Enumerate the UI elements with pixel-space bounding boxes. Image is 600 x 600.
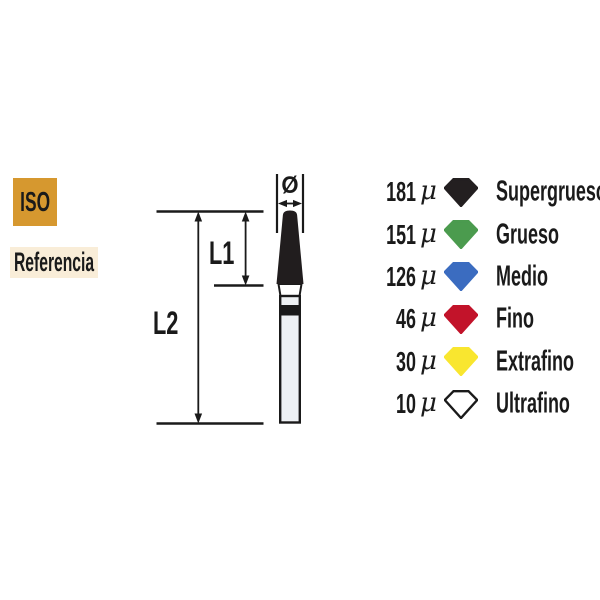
micron-symbol: μ <box>420 261 437 291</box>
grit-diamond-icon <box>444 305 478 334</box>
legend-row-extrafino: 30 μ Extrafino <box>380 341 600 383</box>
bur-head <box>277 211 304 285</box>
grit-diamond-icon <box>444 178 478 207</box>
micron-symbol: μ <box>420 218 437 248</box>
l1-dimension-label: L1 <box>209 235 234 272</box>
grit-diamond-icon <box>444 220 478 249</box>
grit-size-value: 10 <box>380 388 416 420</box>
grit-name-label: Grueso <box>496 218 559 251</box>
bur-neck <box>279 284 302 296</box>
grit-name-label: Extrafino <box>496 345 574 378</box>
bur-collar-band <box>279 305 301 316</box>
legend-row-ultrafino: 10 μ Ultrafino <box>380 383 600 425</box>
grit-name-label: Medio <box>496 260 548 293</box>
l1-dimension-arrow <box>242 212 250 286</box>
diameter-arrow <box>278 200 302 207</box>
grit-size-value: 126 <box>380 261 416 293</box>
grit-name-label: Supergrueso <box>496 176 600 209</box>
legend-row-grueso: 151 μ Grueso <box>380 213 600 255</box>
l2-dimension-label: L2 <box>153 305 178 342</box>
l2-dimension-arrow <box>195 212 203 424</box>
bur-infographic: ISO Referencia <box>0 0 600 600</box>
micron-symbol: μ <box>420 303 437 333</box>
grit-diamond-icon <box>444 347 478 376</box>
grit-size-value: 46 <box>380 303 416 335</box>
grit-size-value: 151 <box>380 219 416 251</box>
legend-row-medio: 126 μ Medio <box>380 256 600 298</box>
grit-size-value: 30 <box>380 346 416 378</box>
legend-row-fino: 46 μ Fino <box>380 298 600 340</box>
micron-symbol: μ <box>420 388 437 418</box>
micron-symbol: μ <box>420 346 437 376</box>
grit-diamond-icon <box>444 390 478 419</box>
grit-size-value: 181 <box>380 176 416 208</box>
micron-symbol: μ <box>420 176 437 206</box>
grit-name-label: Ultrafino <box>496 388 570 421</box>
grit-diamond-icon <box>444 262 478 291</box>
grit-legend: 181 μ Supergrueso 151 μ Grueso 126 μ Med… <box>380 171 600 425</box>
grit-name-label: Fino <box>496 303 534 336</box>
diameter-symbol: Ø <box>278 172 302 200</box>
legend-row-supergrueso: 181 μ Supergrueso <box>380 171 600 213</box>
